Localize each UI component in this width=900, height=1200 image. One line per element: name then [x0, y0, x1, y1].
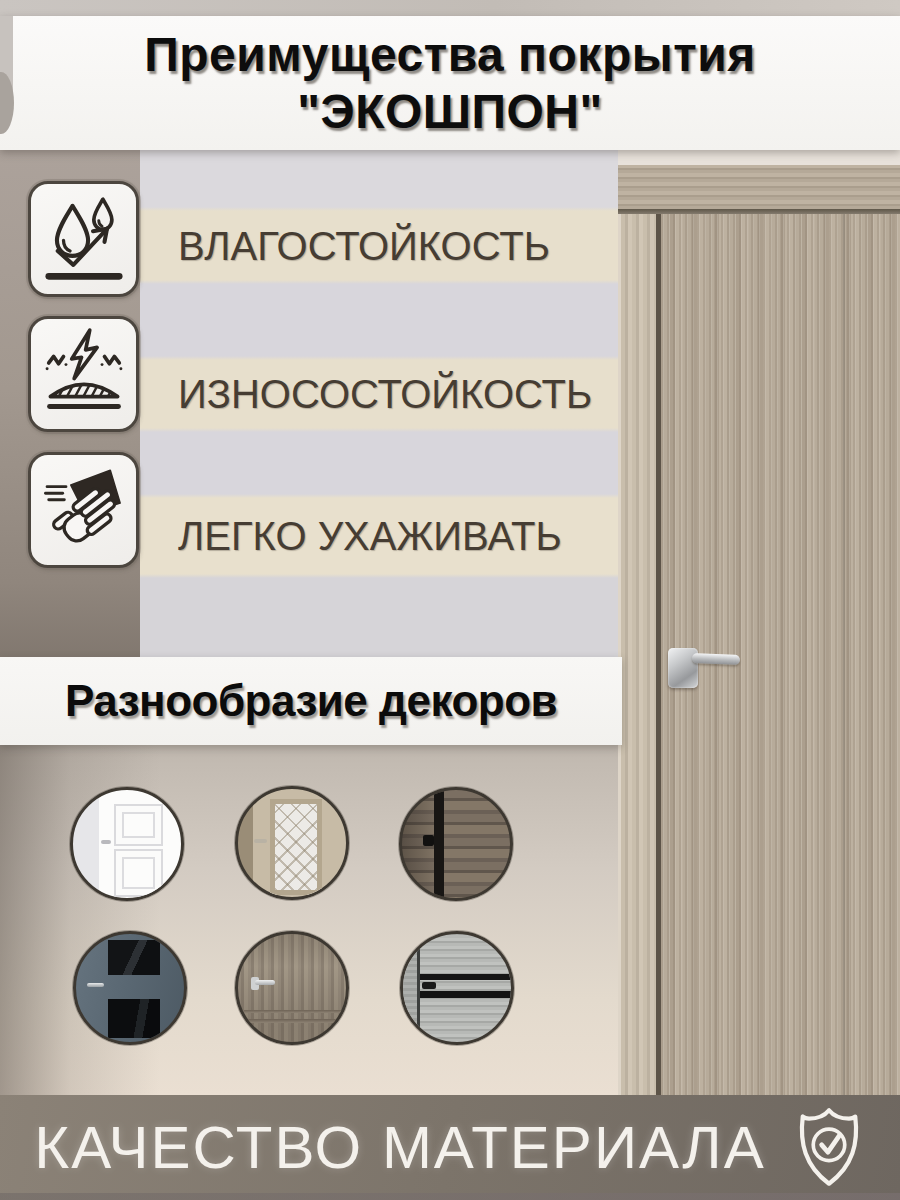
- door-handle: [422, 982, 436, 990]
- feature-card-wear: [28, 316, 139, 432]
- door-photo: [618, 150, 900, 1095]
- dark-glass-panel: [108, 999, 160, 1038]
- door-molding: [244, 1010, 346, 1014]
- footer-label: КАЧЕСТВО МАТЕРИАЛА: [34, 1113, 766, 1182]
- door-panel: [114, 849, 163, 896]
- door-handle: [423, 835, 435, 846]
- wiping-hand-icon: [43, 461, 125, 559]
- feature-label-moisture: ВЛАГОСТОЙКОСТЬ: [178, 222, 550, 270]
- black-glass-stripe: [420, 991, 511, 997]
- door-handle: [255, 980, 274, 984]
- wall-above-door: [618, 150, 900, 165]
- door-molding: [244, 1019, 346, 1023]
- impact-resistance-icon: [43, 325, 125, 423]
- feature-label-wear: ИЗНОСОСТОЙКОСТЬ: [178, 370, 592, 418]
- decor-circle-taupe-wood-door: [235, 931, 349, 1045]
- door-panel: [114, 804, 163, 846]
- decor-circle-dark-rustic-wood: [399, 787, 513, 901]
- black-glass-stripe: [434, 790, 444, 898]
- door-handle: [101, 840, 111, 844]
- door-handle: [87, 983, 104, 988]
- feature-card-care: [28, 452, 139, 568]
- decor-circle-glass-lattice-door: [235, 786, 349, 900]
- shield-check-icon: [792, 1106, 866, 1190]
- title-banner: Преимущества покрытия "ЭКОШПОН": [0, 16, 900, 150]
- feature-card-moisture: [28, 181, 139, 297]
- door-seam: [843, 214, 845, 1095]
- dark-glass-panel: [108, 940, 160, 975]
- decor-circle-white-panel-door: [70, 787, 184, 901]
- door-handle: [254, 839, 267, 843]
- title-line-1: Преимущества покрытия: [144, 26, 755, 83]
- title-line-2: "ЭКОШПОН": [297, 83, 603, 140]
- water-drops-arrow-icon: [43, 190, 125, 288]
- lattice-glass: [270, 799, 322, 895]
- wall-edge-detail: [0, 16, 13, 112]
- decor-circle-blue-door-dark-glass: [73, 931, 187, 1045]
- door-frame-top: [618, 165, 900, 209]
- wall-top-strip: [0, 0, 900, 16]
- black-glass-stripe: [420, 974, 511, 980]
- decor-heading: Разнообразие декоров: [65, 676, 557, 726]
- feature-label-care: ЛЕГКО УХАЖИВАТЬ: [178, 512, 562, 560]
- door-jamb: [618, 214, 656, 1095]
- decor-circle-gray-wood-black-stripes: [400, 931, 514, 1045]
- door-handle-lever: [692, 653, 740, 665]
- footer-band: КАЧЕСТВО МАТЕРИАЛА: [0, 1095, 900, 1200]
- decor-banner: Разнообразие декоров: [0, 657, 622, 745]
- ecoshpon-promo-image: Преимущества покрытия "ЭКОШПОН" ВЛАГОСТО…: [0, 0, 900, 1200]
